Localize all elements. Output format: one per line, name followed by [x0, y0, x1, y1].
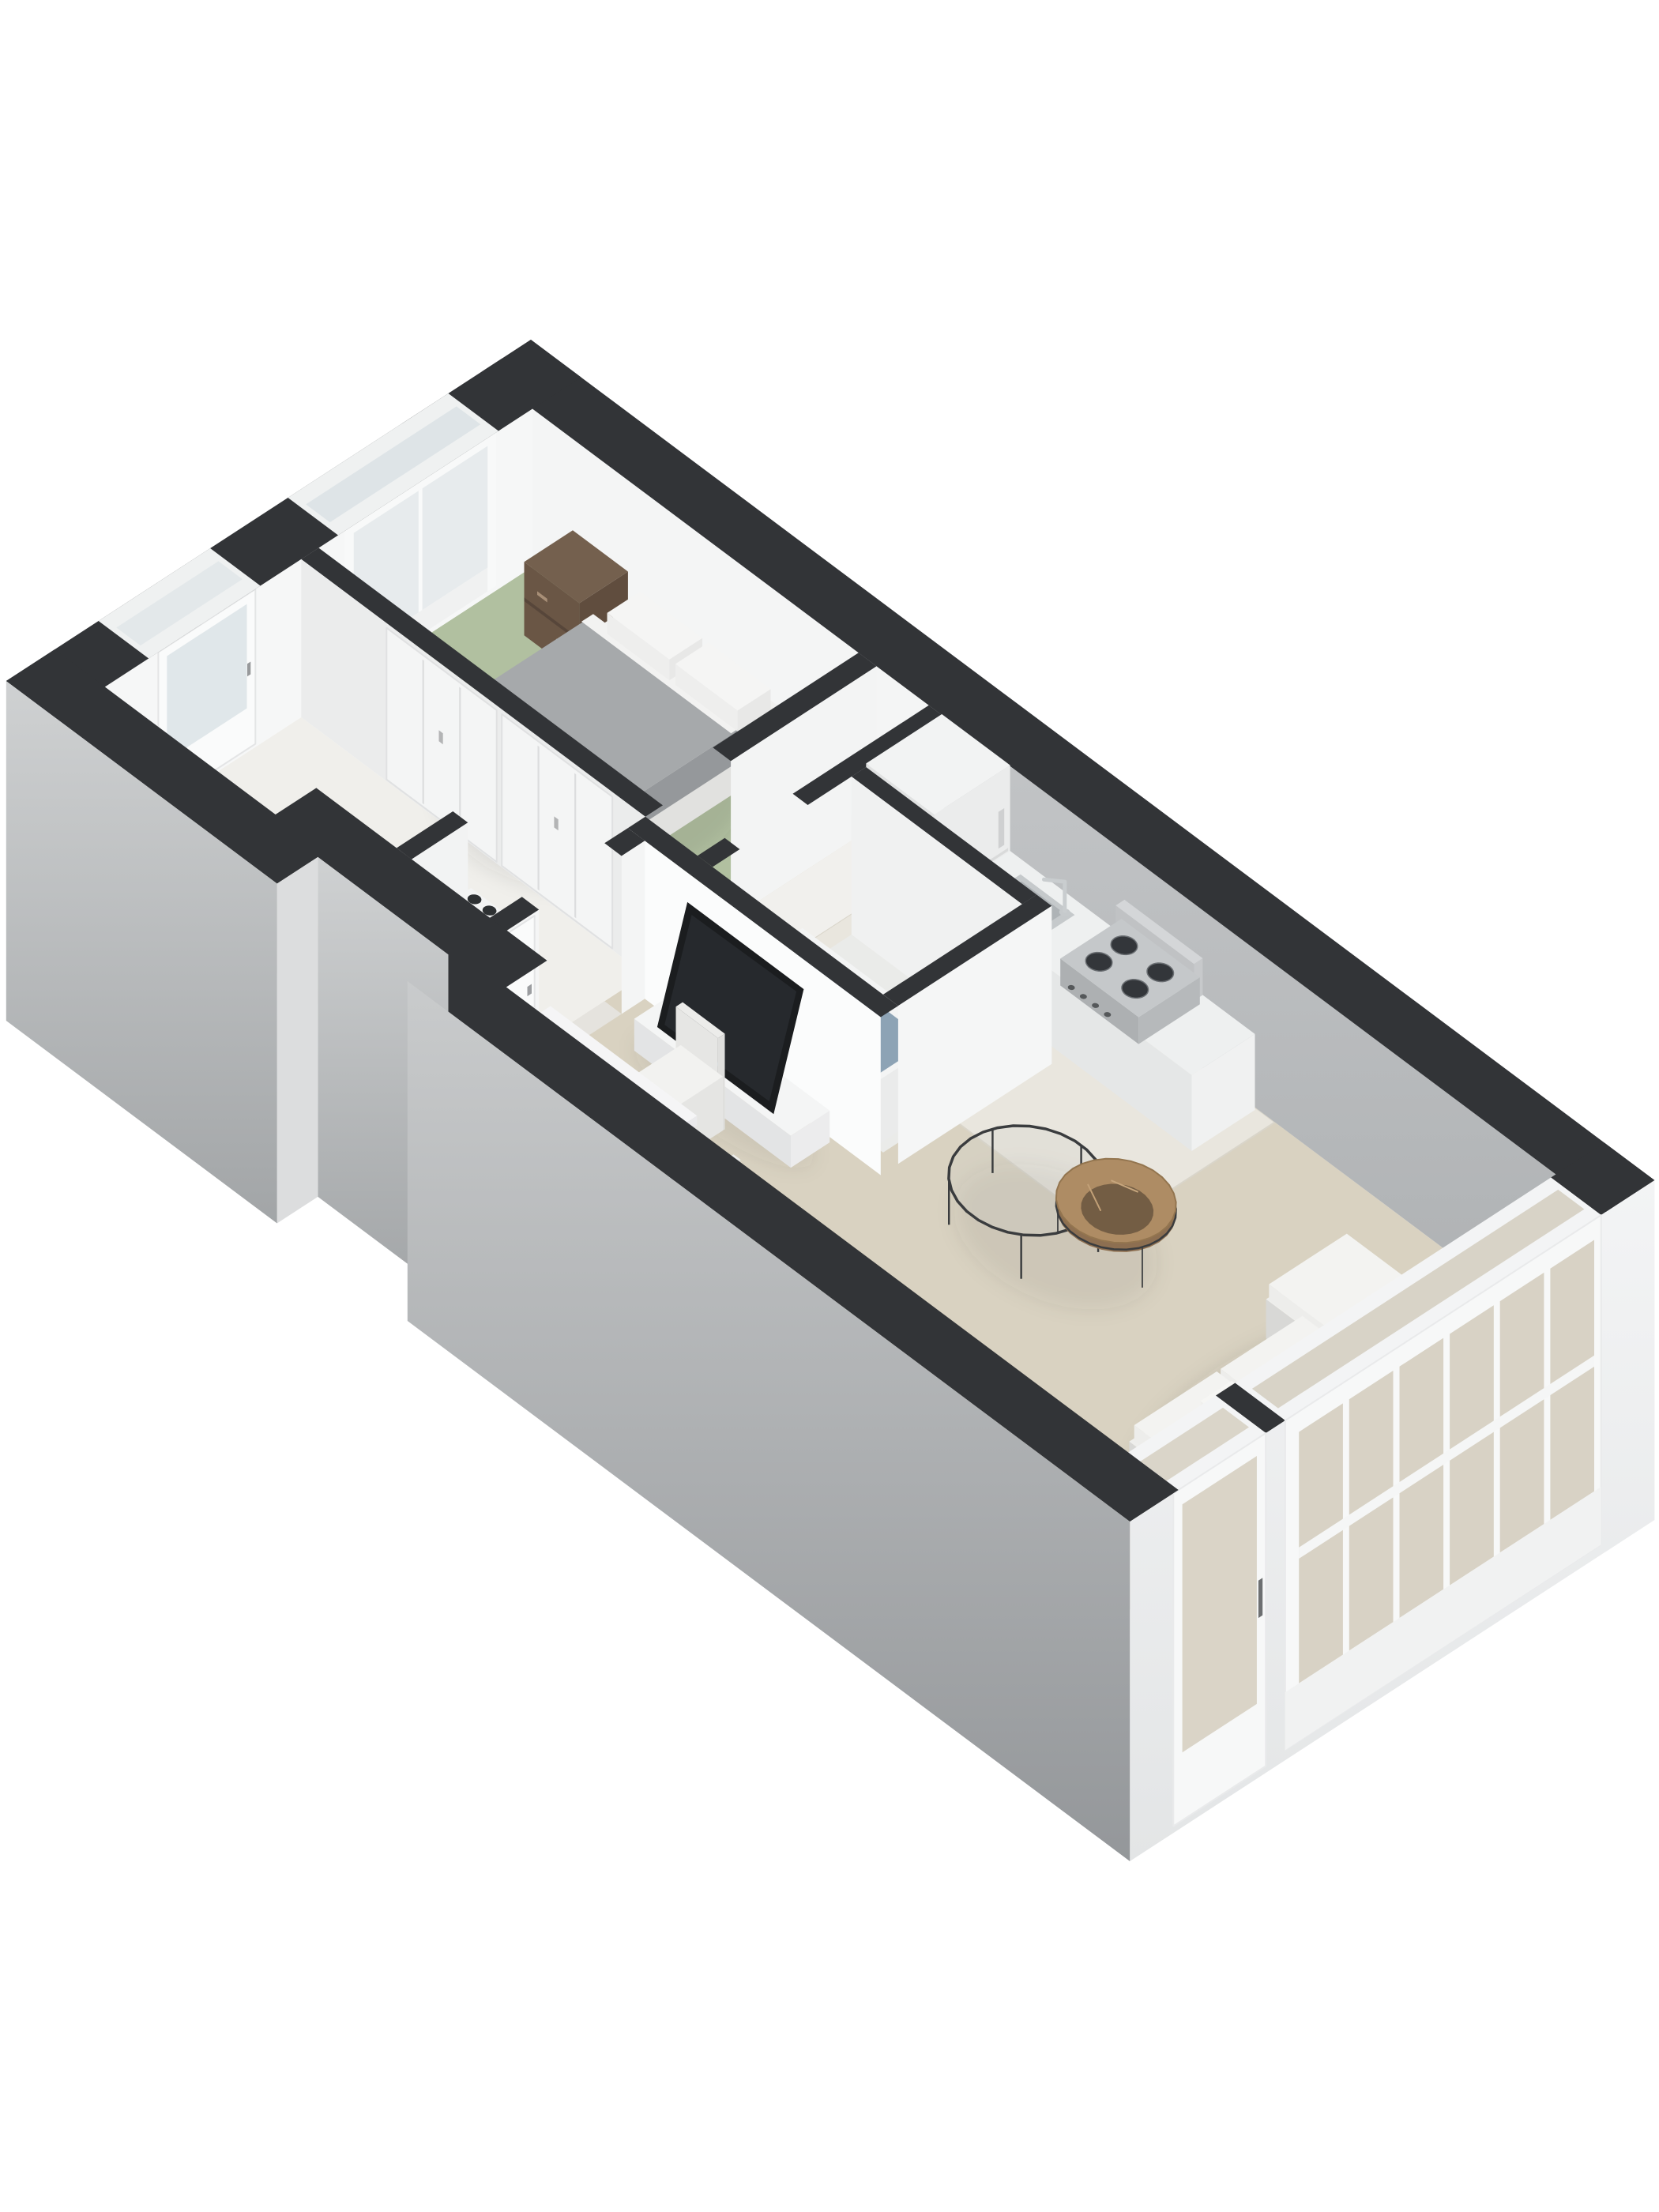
- se-door-glass: [1183, 1456, 1257, 1752]
- closet-a-groove-1: [423, 660, 424, 805]
- floorplan-3d-render: [0, 0, 1659, 2212]
- bedroom-window-mullion: [419, 488, 423, 612]
- floorplan-canvas: [0, 0, 1659, 2212]
- fridge-handle: [999, 808, 1004, 848]
- se-door-handle: [1258, 1578, 1262, 1618]
- stove-burner-4: [1122, 980, 1149, 999]
- closet-b-groove-2: [574, 773, 576, 919]
- stove-burner-3: [1085, 953, 1112, 972]
- closet-b-groove-1: [538, 746, 540, 891]
- sw-ext-jog-face: [277, 857, 318, 1224]
- stove-burner-1: [1111, 936, 1138, 955]
- hall-divider-face-1: [622, 841, 645, 1014]
- stove-burner-2: [1147, 963, 1174, 982]
- closet-a-groove-2: [459, 687, 461, 833]
- entry-door-handle: [247, 662, 250, 677]
